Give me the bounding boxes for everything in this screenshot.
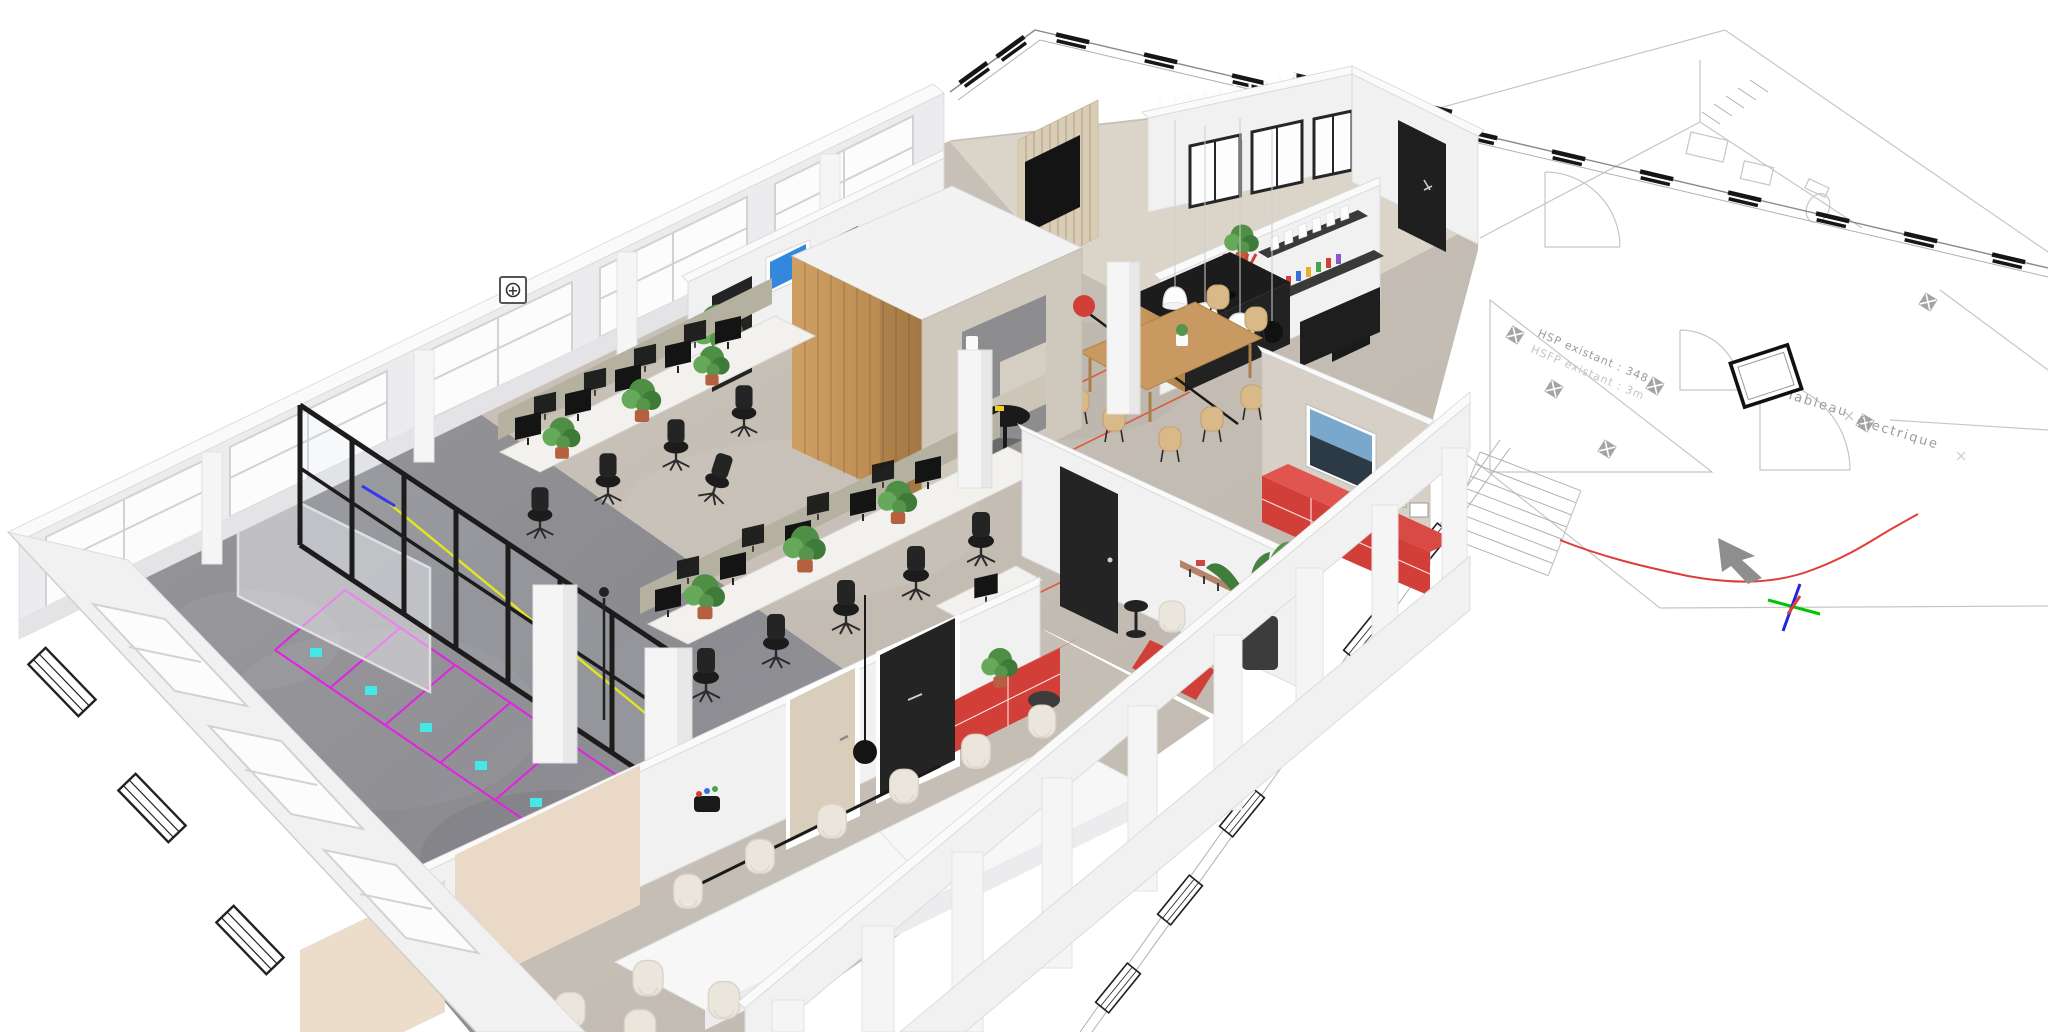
pod-red-disc [1073, 295, 1095, 317]
door-black-lounge [1060, 466, 1118, 634]
section-plane-glyph: + [508, 284, 519, 299]
cad-point-cross-2 [1957, 452, 1965, 460]
cad-text-electrique: électrique [1855, 413, 1941, 452]
canvas-3d-viewport[interactable]: HSP existant : 348 HSFP existant : 3m Ta… [0, 0, 2048, 1032]
section-plane-button[interactable]: + [500, 277, 526, 303]
small-frame-2 [1410, 503, 1428, 517]
viewport-3d[interactable]: HSP existant : 348 HSFP existant : 3m Ta… [0, 0, 2048, 1032]
north-arrow [1718, 538, 1762, 584]
pendant-sphere [853, 740, 877, 764]
pod-table-item [995, 406, 1004, 411]
